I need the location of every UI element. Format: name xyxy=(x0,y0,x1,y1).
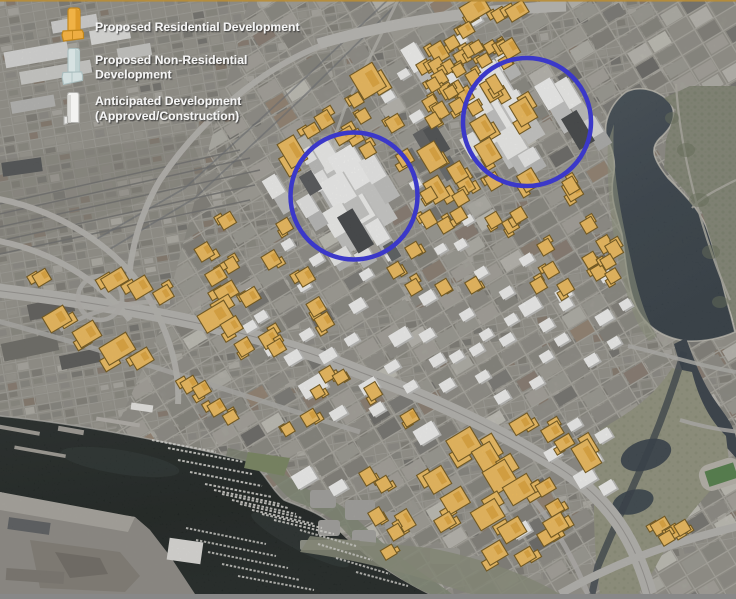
svg-text:(Approved/Construction): (Approved/Construction) xyxy=(95,109,239,123)
svg-text:Proposed Non-Residential: Proposed Non-Residential xyxy=(95,53,247,67)
svg-text:Anticipated Development: Anticipated Development xyxy=(95,94,241,108)
svg-text:Proposed Residential Developme: Proposed Residential Development xyxy=(95,20,300,34)
svg-text:Development: Development xyxy=(95,68,172,82)
